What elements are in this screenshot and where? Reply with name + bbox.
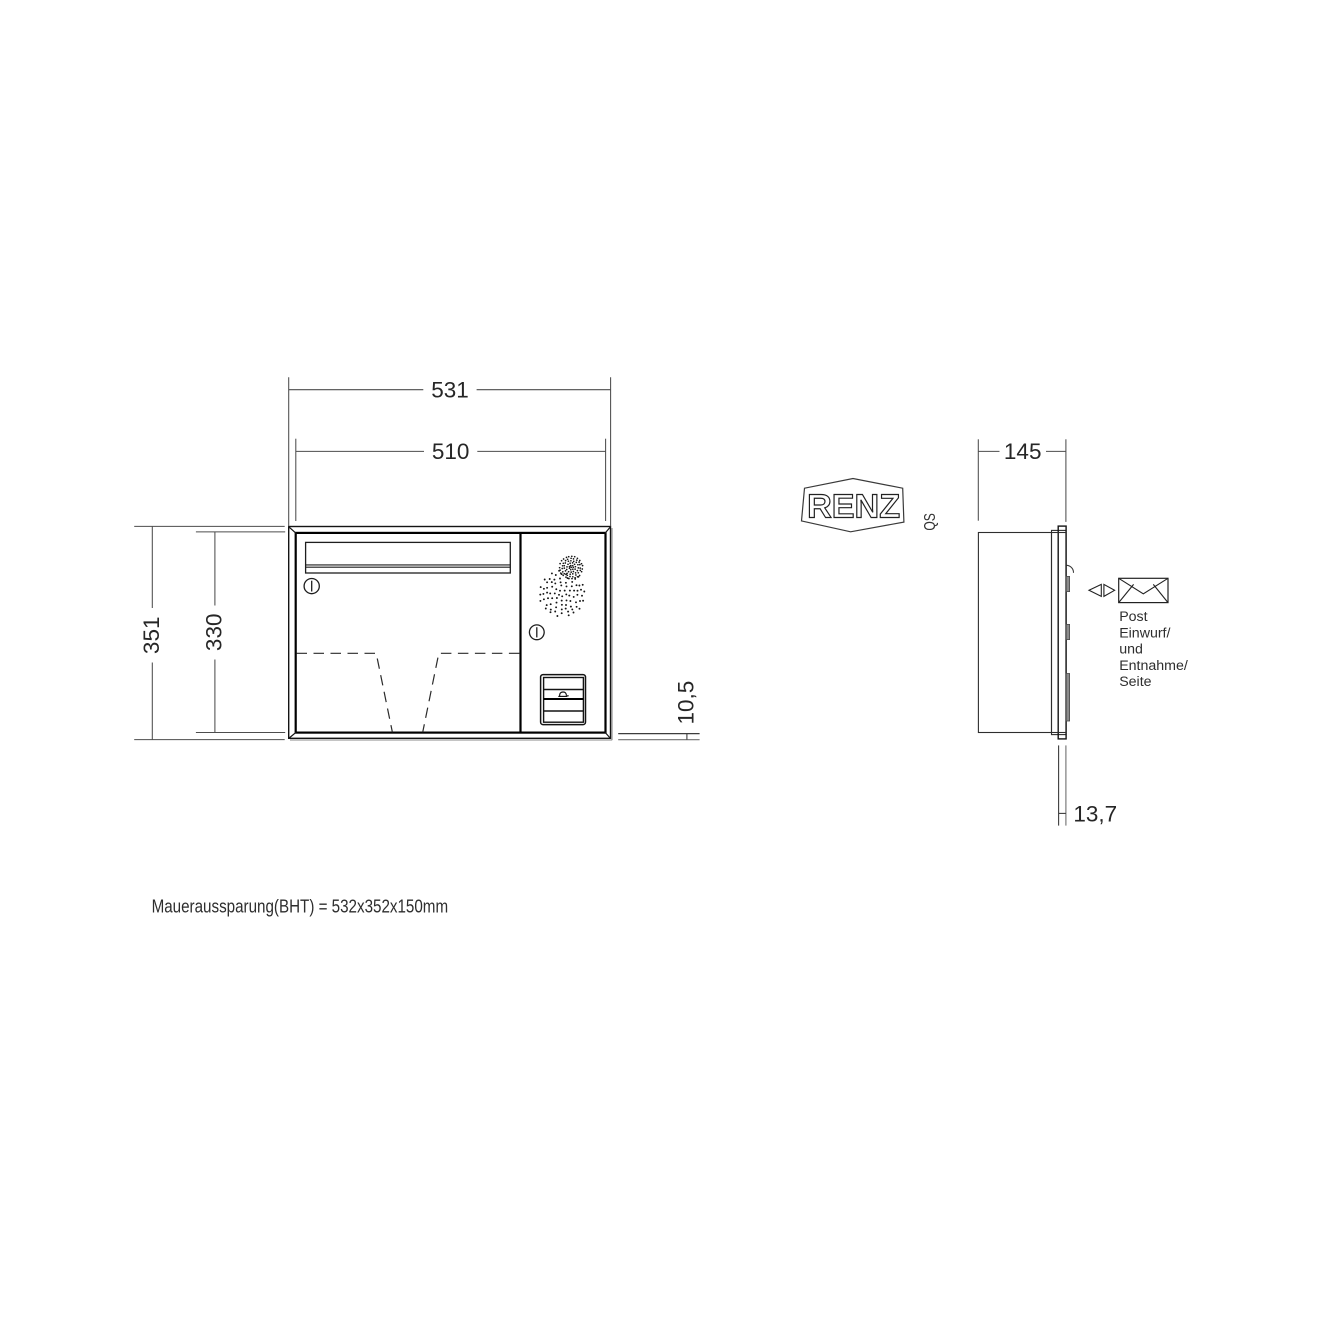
svg-text:Maueraussparung(BHT) = 532x352: Maueraussparung(BHT) = 532x352x150mm [152,895,449,916]
svg-text:RENZ: RENZ [807,488,900,525]
svg-text:510: 510 [432,439,470,464]
svg-text:351: 351 [139,617,164,655]
svg-text:und: und [1119,642,1143,658]
svg-text:531: 531 [431,377,469,402]
svg-text:13,7: 13,7 [1073,801,1117,826]
svg-text:Seite: Seite [1119,674,1151,690]
svg-text:Entnahme/: Entnahme/ [1119,658,1188,674]
svg-text:330: 330 [202,614,227,652]
svg-text:QS: QS [922,513,939,531]
svg-text:145: 145 [1004,439,1042,464]
svg-text:Post: Post [1119,609,1147,625]
svg-text:Einwurf/: Einwurf/ [1119,625,1170,641]
svg-text:10,5: 10,5 [673,681,698,725]
